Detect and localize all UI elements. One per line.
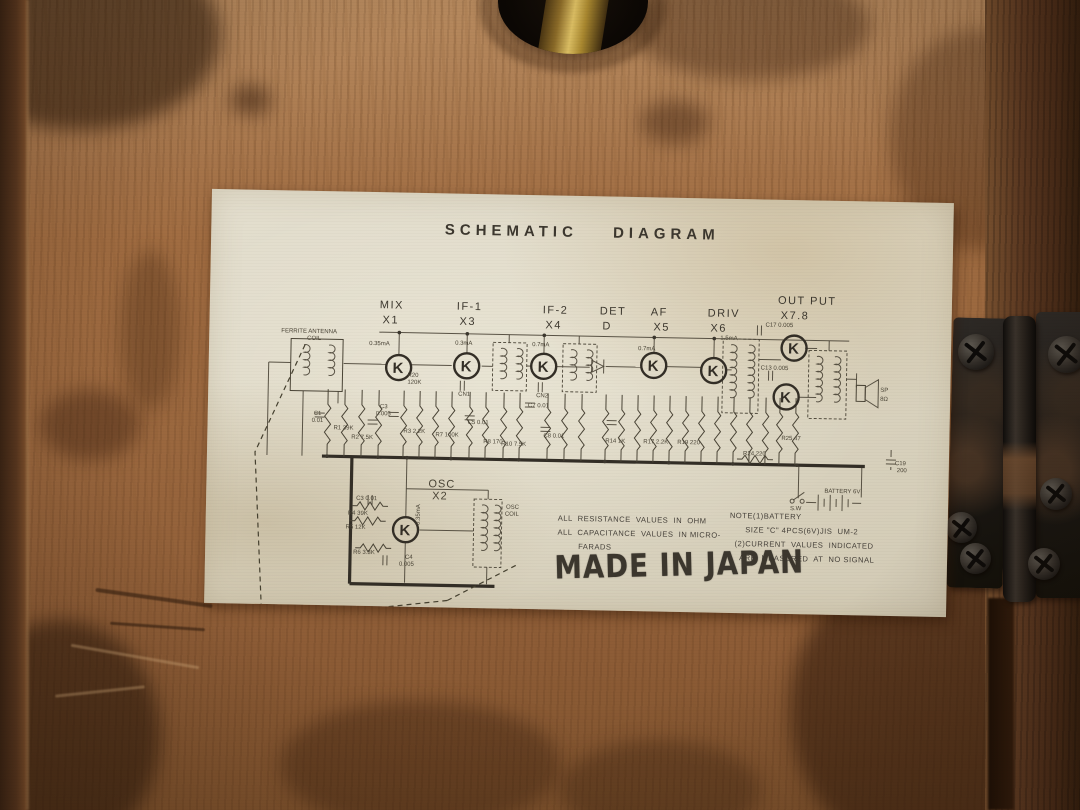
svg-text:C5 0.01: C5 0.01 [468,420,490,426]
svg-text:MIX: MIX [380,299,404,311]
screw-icon [1040,478,1072,510]
svg-text:K: K [392,360,403,377]
svg-text:C1: C1 [314,411,322,417]
svg-text:CN2: CN2 [536,393,549,399]
svg-text:0.3mA: 0.3mA [455,341,472,347]
svg-text:R6 3.3K: R6 3.3K [353,550,375,556]
screw-icon [960,543,991,574]
svg-text:X3: X3 [459,316,476,328]
svg-text:0.35mA: 0.35mA [416,504,422,525]
svg-text:C3 0.01: C3 0.01 [356,496,378,502]
screw-icon [1048,336,1080,373]
svg-text:IF-1: IF-1 [457,301,483,313]
svg-text:BATTERY 6V: BATTERY 6V [824,489,860,496]
svg-text:K: K [538,359,549,376]
svg-text:R14 1K: R14 1K [605,439,625,445]
svg-text:R1 39K: R1 39K [333,425,353,431]
svg-text:OSC: OSC [428,478,455,491]
svg-text:C4: C4 [405,555,413,561]
svg-text:X7.8: X7.8 [781,310,810,323]
svg-text:8Ω: 8Ω [880,397,888,403]
scratch-mark [110,622,205,632]
wood-knot [40,390,140,460]
svg-text:C8 0.01: C8 0.01 [543,433,565,439]
brass-handle-post [537,0,617,54]
svg-text:200: 200 [897,468,908,474]
svg-text:SP: SP [880,388,888,394]
svg-text:X5: X5 [653,321,670,333]
corner-shadow [0,0,220,130]
schematic-label: SCHEMATIC DIAGRAM KKKKKKKKMIXX1IF-1X3IF-… [204,189,954,617]
svg-text:X4: X4 [545,319,562,331]
wood-stain [280,700,560,810]
svg-text:DRIV: DRIV [708,307,741,320]
svg-text:OSC: OSC [506,505,520,511]
svg-text:C17 0.005: C17 0.005 [765,323,793,330]
svg-text:120K: 120K [407,380,421,386]
screw-icon [946,512,977,543]
svg-text:R4 39K: R4 39K [348,511,368,517]
svg-text:COIL: COIL [307,336,322,342]
svg-text:X1: X1 [382,314,399,326]
svg-text:K: K [461,358,472,375]
svg-text:R19 220: R19 220 [677,440,700,446]
svg-text:X6: X6 [710,323,727,335]
svg-text:0.7mA: 0.7mA [638,346,655,352]
radio-back-panel-photo: SCHEMATIC DIAGRAM KKKKKKKKMIXX1IF-1X3IF-… [0,0,1080,810]
svg-text:0.005: 0.005 [376,411,392,417]
svg-text:0.7mA: 0.7mA [532,342,549,348]
svg-text:0.005: 0.005 [399,562,415,568]
wood-stain [630,0,870,80]
svg-text:K: K [399,522,410,539]
svg-text:R5 12K: R5 12K [346,525,366,531]
svg-text:K: K [780,389,791,406]
svg-text:0.35mA: 0.35mA [369,341,390,347]
svg-text:1.5mA: 1.5mA [720,336,737,342]
svg-text:OUT PUT: OUT PUT [778,295,837,308]
svg-text:R7 100K: R7 100K [435,432,458,438]
svg-text:R24 220: R24 220 [743,451,766,457]
svg-text:K: K [788,341,799,358]
svg-text:AF: AF [651,306,668,318]
svg-text:C13 0.005: C13 0.005 [761,365,789,372]
screw-icon [958,334,994,370]
svg-text:D: D [602,320,612,332]
svg-text:K: K [707,363,718,380]
svg-text:FERRITE ANTENNA: FERRITE ANTENNA [281,328,337,335]
wood-stain [560,740,760,810]
svg-text:R10 7.5K: R10 7.5K [501,442,526,448]
svg-text:CN1: CN1 [458,392,471,398]
svg-text:R2 7.5K: R2 7.5K [351,435,373,441]
svg-text:X2: X2 [432,490,448,502]
svg-text:C7 0.01: C7 0.01 [528,403,550,409]
svg-text:IF-2: IF-2 [543,304,569,316]
svg-text:R3 2.2K: R3 2.2K [403,429,425,435]
handle-hole [498,0,648,54]
wood-knot [640,100,710,144]
screw-icon [1028,548,1060,580]
wood-stain [120,250,180,410]
svg-text:COIL: COIL [505,512,520,518]
svg-text:R20: R20 [407,373,419,379]
svg-text:C19: C19 [895,461,907,467]
svg-text:DET: DET [600,305,627,318]
svg-text:R25 47: R25 47 [781,436,801,442]
made-in-japan-stamp: MADE IN JAPAN [554,544,805,587]
scratch-mark [95,588,212,608]
svg-text:C3: C3 [380,404,388,410]
svg-text:K: K [648,358,659,375]
svg-text:0.01: 0.01 [312,418,324,424]
svg-text:R17 2.2K: R17 2.2K [643,439,668,445]
wood-knot [230,85,272,115]
